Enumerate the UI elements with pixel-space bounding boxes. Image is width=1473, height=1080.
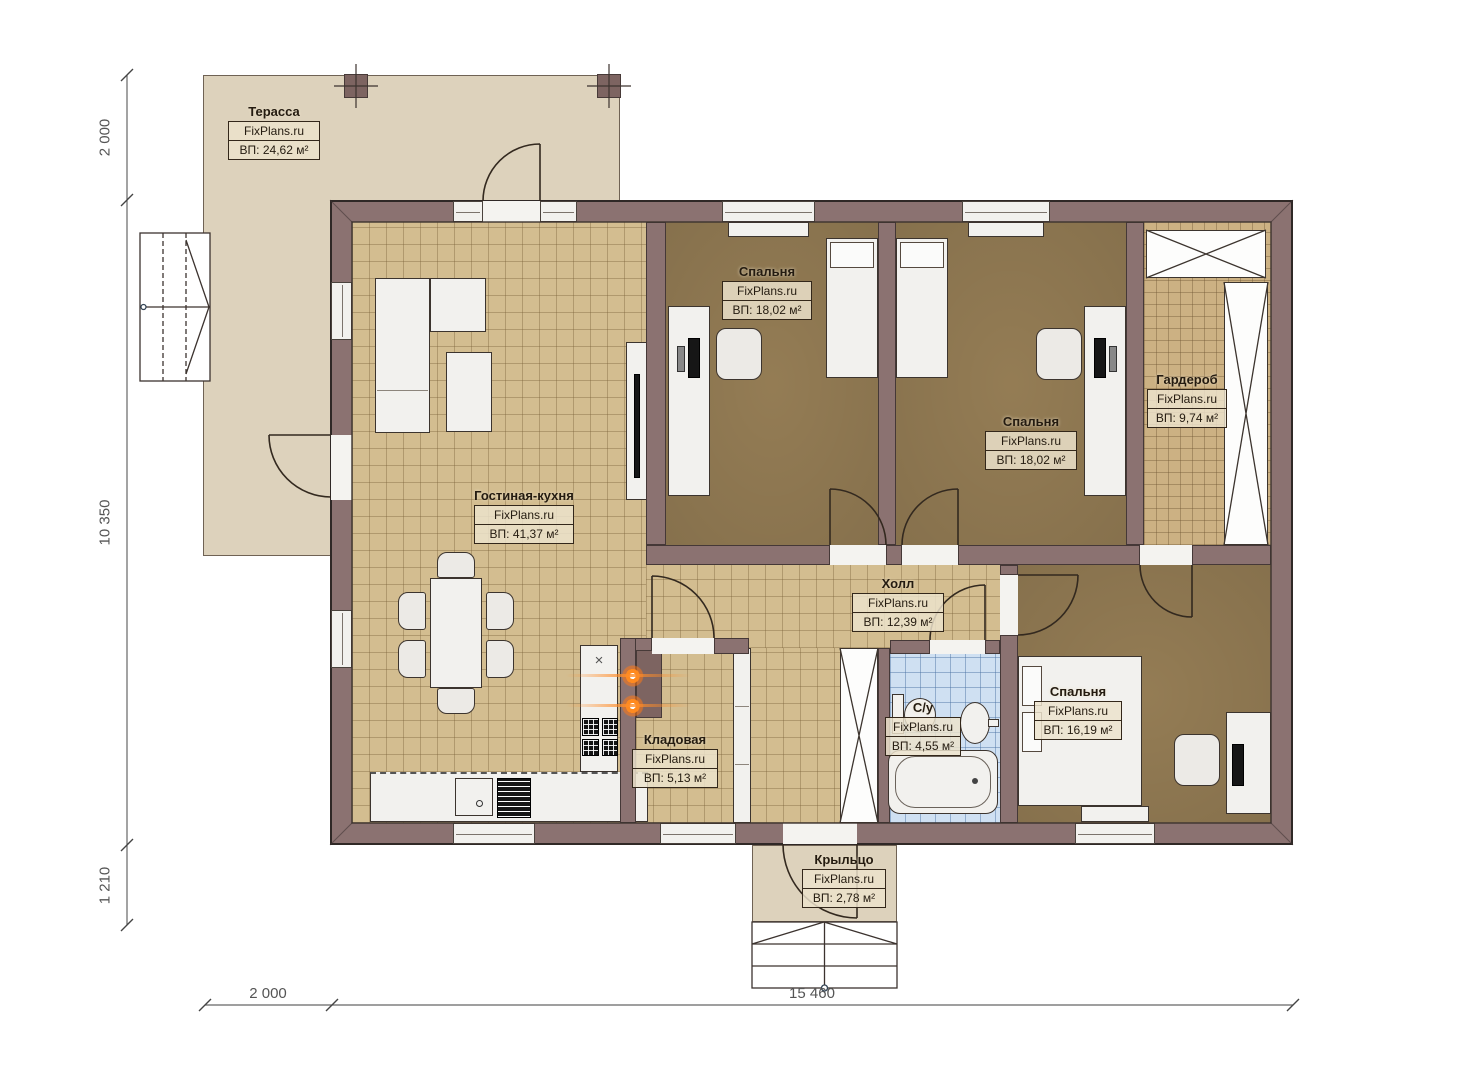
porch-steps (752, 922, 897, 991)
window-sill (968, 222, 1044, 237)
window (453, 201, 483, 222)
brand-watermark: FixPlans.ru (475, 506, 573, 525)
office-chair (716, 328, 762, 380)
wall-segment (890, 640, 930, 654)
room-label-bedroom-1: Спальня FixPlans.ru ВП: 18,02 м² (722, 264, 812, 320)
room-title: Гостиная-кухня (474, 488, 574, 503)
wall-segment (886, 545, 902, 565)
room-label-wardrobe: Гардероб FixPlans.ru ВП: 9,74 м² (1147, 372, 1227, 428)
desk (668, 306, 710, 496)
terrace-column (597, 74, 621, 98)
terrace-column (344, 74, 368, 98)
door-opening (930, 640, 985, 654)
hall-closet (840, 648, 878, 823)
brand-watermark: FixPlans.ru (229, 122, 319, 141)
terrace-door-opening (483, 201, 540, 222)
room-label-bathroom: С/у FixPlans.ru ВП: 4,55 м² (885, 700, 961, 756)
pillow (900, 242, 944, 268)
chair (398, 592, 426, 630)
room-title: Кладовая (632, 732, 718, 747)
keyboard (1109, 346, 1117, 372)
room-area: ВП: 24,62 м² (229, 141, 319, 159)
chair (398, 640, 426, 678)
terrace-steps (140, 233, 210, 381)
room-area: ВП: 4,55 м² (886, 737, 960, 755)
burner-icon (614, 664, 648, 688)
floor-plan: × (0, 0, 1473, 1080)
window (660, 823, 736, 844)
room-label-bedroom-3: Спальня FixPlans.ru ВП: 16,19 м² (1034, 684, 1122, 740)
window (453, 823, 535, 844)
stove-symbol (582, 718, 618, 756)
window (331, 282, 352, 340)
chair (486, 592, 514, 630)
dimension-label: 2 000 (97, 103, 114, 173)
window (540, 201, 577, 222)
brand-watermark: FixPlans.ru (1035, 702, 1121, 721)
door-opening (830, 545, 886, 565)
room-label-hall: Холл FixPlans.ru ВП: 12,39 м² (852, 576, 944, 632)
brand-watermark: FixPlans.ru (723, 282, 811, 301)
appliance (497, 778, 531, 818)
wall-segment (1126, 222, 1144, 545)
chair (486, 640, 514, 678)
monitor (688, 338, 700, 378)
window (331, 610, 352, 668)
room-area: ВП: 12,39 м² (853, 613, 943, 631)
dimension-label: 1 210 (97, 851, 114, 921)
monitor (1094, 338, 1106, 378)
sofa (430, 278, 486, 332)
window-sill (728, 222, 809, 237)
door-opening (652, 638, 714, 654)
keyboard (677, 346, 685, 372)
room-title: Холл (852, 576, 944, 591)
wall-segment (878, 222, 896, 545)
room-title: Спальня (722, 264, 812, 279)
room-title: Терасса (228, 104, 320, 119)
hall-floor (646, 565, 1000, 648)
dining-table (430, 578, 482, 688)
burner-icon (614, 694, 648, 718)
sink-tap (988, 719, 999, 727)
brand-watermark: FixPlans.ru (803, 870, 885, 889)
pantry-shelves (733, 648, 751, 823)
wall-segment (646, 545, 830, 565)
wardrobe-cabinet (1146, 230, 1266, 278)
room-area: ВП: 5,13 м² (633, 769, 717, 787)
room-area: ВП: 41,37 м² (475, 525, 573, 543)
room-label-living-kitchen: Гостиная-кухня FixPlans.ru ВП: 41,37 м² (474, 488, 574, 544)
bathtub-drain (972, 778, 978, 784)
monitor (1232, 744, 1244, 786)
bathroom-sink (960, 702, 990, 744)
entry-corridor-floor (749, 648, 840, 823)
room-area: ВП: 9,74 м² (1148, 409, 1226, 427)
terrace-side-door-opening (331, 435, 352, 500)
room-title: С/у (885, 700, 961, 715)
wall-segment (958, 545, 1140, 565)
brand-watermark: FixPlans.ru (1148, 390, 1226, 409)
brand-watermark: FixPlans.ru (886, 718, 960, 737)
room-label-bedroom-2: Спальня FixPlans.ru ВП: 18,02 м² (985, 414, 1077, 470)
entrance-door-opening (783, 823, 857, 844)
dimension-label: 2 000 (233, 985, 303, 1002)
dimension-label: 10 350 (97, 488, 114, 558)
wall-segment (985, 640, 1000, 654)
sink-drain (476, 800, 483, 807)
room-label-terrace: Терасса FixPlans.ru ВП: 24,62 м² (228, 104, 320, 160)
room-title: Спальня (985, 414, 1077, 429)
room-area: ВП: 16,19 м² (1035, 721, 1121, 739)
wall-segment (714, 638, 749, 654)
room-title: Спальня (1034, 684, 1122, 699)
office-chair (1174, 734, 1220, 786)
room-title: Гардероб (1147, 372, 1227, 387)
window (1075, 823, 1155, 844)
window (722, 201, 815, 222)
chair (437, 688, 475, 714)
room-label-porch: Крыльцо FixPlans.ru ВП: 2,78 м² (802, 852, 886, 908)
door-opening (1000, 575, 1018, 635)
room-area: ВП: 2,78 м² (803, 889, 885, 907)
dimension-label: 15 460 (777, 985, 847, 1002)
wall-segment (646, 222, 666, 545)
sink-symbol: × (588, 650, 610, 672)
room-area: ВП: 18,02 м² (986, 451, 1076, 469)
chair (437, 552, 475, 578)
door-opening (1140, 545, 1192, 565)
kitchen-sink (455, 778, 493, 816)
desk (1084, 306, 1126, 496)
brand-watermark: FixPlans.ru (633, 750, 717, 769)
window-sill (1081, 806, 1149, 822)
wardrobe-cabinet (1224, 282, 1268, 545)
pillow (830, 242, 874, 268)
sofa (375, 278, 430, 433)
window (962, 201, 1050, 222)
wall-segment (1000, 565, 1018, 575)
door-opening (902, 545, 958, 565)
brand-watermark: FixPlans.ru (986, 432, 1076, 451)
room-label-pantry: Кладовая FixPlans.ru ВП: 5,13 м² (632, 732, 718, 788)
tv (634, 374, 640, 478)
wall-segment (1000, 635, 1018, 823)
coffee-table (446, 352, 492, 432)
room-title: Крыльцо (802, 852, 886, 867)
brand-watermark: FixPlans.ru (853, 594, 943, 613)
room-area: ВП: 18,02 м² (723, 301, 811, 319)
wall-segment (1192, 545, 1271, 565)
office-chair (1036, 328, 1082, 380)
